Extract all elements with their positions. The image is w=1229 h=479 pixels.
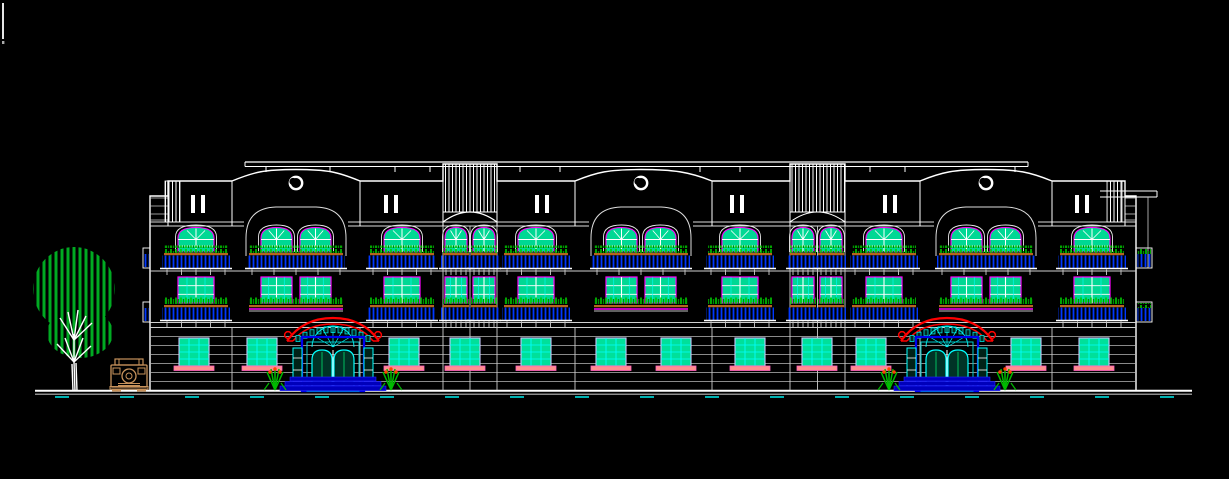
balcony-railing [469,308,499,321]
window-sill [656,366,696,371]
side-balcony [1136,248,1152,268]
window-sill [591,366,631,371]
ground-floor-window [656,338,696,371]
balcony-railing [706,256,774,269]
flower [389,367,392,370]
tower-striped-top [443,164,497,212]
window-sill [1006,366,1046,371]
balcony-plants [504,246,568,254]
second-floor-unit [160,277,232,327]
balcony-railing [592,256,690,269]
entrance-step [285,382,381,386]
balcony-railing [706,308,774,321]
planter-box [594,253,688,255]
balcony-railing [937,256,1035,269]
ground-floor-window [591,338,631,371]
planter-box [818,305,844,307]
car-headlight [138,368,145,374]
parapet-ii-ornaments [191,195,1089,213]
planter-box [249,305,343,307]
ii-mark [883,195,887,213]
window-sill [174,366,214,371]
flower [892,370,895,373]
building-elevation-drawing [0,0,1229,479]
balcony-railing [441,308,471,321]
ground-floor-window [445,338,485,371]
side-balcony [1136,302,1152,322]
planter-box [164,305,228,307]
tree-branch [72,364,73,391]
second-floor-unit [249,277,343,311]
ii-mark [384,195,388,213]
car-wheel [137,389,146,392]
canopy-ornament [366,336,370,342]
balcony-railing [788,308,818,321]
planter-box [708,253,772,255]
third-floor-unit [439,225,473,275]
entrance-step [894,386,1000,391]
planter-box [471,305,497,307]
flower [882,370,885,373]
ground-floor-window [1074,338,1114,371]
balcony-plants [708,298,772,306]
planter-box [504,253,568,255]
balcony-plants [1060,246,1124,254]
third-floor-unit [814,225,848,275]
balcony-railing [441,256,471,269]
tower-arch [790,212,845,222]
gable-circle-ornament [979,177,992,189]
planter-box [164,253,228,255]
ground-floor-window [174,338,214,371]
window-sill [730,366,770,371]
third-floor-unit [366,225,438,275]
balcony-railing [816,256,846,269]
ground-floor-window [242,338,282,371]
car-bumper [110,387,148,390]
balcony-plants [790,298,816,306]
balcony-plants [852,298,916,306]
gable-circle-ornament [289,177,302,189]
entrance-step [904,377,990,381]
third-floor-unit [245,207,347,275]
ground-floor-window [1006,338,1046,371]
balcony-railing [162,256,230,269]
ii-mark [1075,195,1079,213]
planter-plants [594,298,688,306]
ii-mark [394,195,398,213]
ground-floor-window [851,338,891,371]
ground-floor-window [797,338,837,371]
flower [278,370,281,373]
car-headlight [113,368,120,374]
third-floor-unit [786,225,820,275]
third-floor-unit [160,225,232,275]
balcony-plants [443,246,469,254]
balcony-plants [370,298,434,306]
second-floor-unit [704,277,776,327]
balcony-railing [502,308,570,321]
balcony-plants [939,246,1033,254]
canopy-ornament [296,336,300,342]
flower [1003,367,1006,370]
striped-pilaster [1107,181,1122,222]
planter-box [504,305,568,307]
entrance-step [290,377,376,381]
second-floor-unit [439,277,473,327]
balcony-railing [1058,256,1126,269]
second-floor-unit [366,277,438,327]
ground-floor-window [730,338,770,371]
tower-arch [443,212,497,222]
ii-mark [1085,195,1089,213]
flower [887,367,890,370]
balcony-plants [594,246,688,254]
balcony-plants [708,246,772,254]
planter-box [370,305,434,307]
planter-box [818,253,844,255]
ii-mark [893,195,897,213]
balcony-railing [1058,308,1126,321]
planter-box [370,253,434,255]
planter-box [939,253,1033,255]
planter-box [443,253,469,255]
balcony-plants [818,246,844,254]
cad-drawing-area [0,0,1229,479]
third-floor-unit [500,225,572,275]
balcony-railing [162,308,230,321]
window-sill [797,366,837,371]
balcony-railing [850,308,918,321]
balcony-railing [850,256,918,269]
planter-plants [939,298,1033,306]
balcony-plants [164,246,228,254]
flower [268,370,271,373]
tree-branch [74,362,75,391]
striped-pilaster [165,181,180,222]
third-floor-unit [590,207,692,275]
balcony-plants [370,246,434,254]
canopy-ornament [310,330,314,336]
tree [33,247,115,391]
second-floor-unit [500,277,572,327]
third-floor-unit [1056,225,1128,275]
entrance-step [899,382,995,386]
planter-box [852,305,916,307]
ground-floor-window [384,338,424,371]
second-floor-unit [467,277,501,327]
balcony-plants [1060,298,1124,306]
flower [384,370,387,373]
ii-mark [730,195,734,213]
planter-box [471,253,497,255]
balcony-plants [790,246,816,254]
flower [394,370,397,373]
balcony-railing [368,256,436,269]
balcony-railing [469,256,499,269]
second-floor-unit [1056,277,1128,327]
window-sill [516,366,556,371]
canopy-ornament [924,330,928,336]
balcony-railing [816,308,846,321]
tree-branch [76,363,77,391]
ii-mark [740,195,744,213]
car [110,359,148,392]
balcony-plants [818,298,844,306]
second-floor-unit [814,277,848,327]
planter-box [790,253,816,255]
ground-line [35,391,1192,394]
balcony-plants [504,298,568,306]
flower [273,367,276,370]
flower [998,370,1001,373]
planter-box [1060,253,1124,255]
second-floor-unit [848,277,920,327]
third-floor-unit [935,207,1037,275]
planter-box [1060,305,1124,307]
ii-mark [535,195,539,213]
balcony-railing [502,256,570,269]
balcony-railing [788,256,818,269]
canopy-ornament [910,336,914,342]
window-sill [1074,366,1114,371]
planter-box [852,253,916,255]
balcony-plants [852,246,916,254]
balcony-plants [471,298,497,306]
planter-box [443,305,469,307]
flower [1008,370,1011,373]
third-floor-unit [467,225,501,275]
ground-floor-window [516,338,556,371]
balcony-railing [368,308,436,321]
third-floor-unit [704,225,776,275]
tower-striped-top [790,164,845,212]
side-balcony [143,302,150,322]
planter-box [594,305,688,307]
text-cursor-mark [2,3,4,44]
canopy-ornament [966,330,970,336]
balcony-plants [249,246,343,254]
second-floor-unit [786,277,820,327]
window-sill [445,366,485,371]
planter-box [790,305,816,307]
planter-box [939,305,1033,307]
tree-canopy [47,308,113,358]
balcony-railing [247,256,345,269]
balcony-plants [164,298,228,306]
entrance-step [280,386,386,391]
ii-mark [201,195,205,213]
car-spare-tire [122,369,136,383]
third-floor-unit [848,225,920,275]
side-balcony [143,248,150,268]
ii-mark [545,195,549,213]
ii-mark [191,195,195,213]
planter-box [708,305,772,307]
gable-circle-ornament [634,177,647,189]
planter-box [249,253,343,255]
car-wheel [112,389,121,392]
second-floor-unit [594,277,688,311]
balcony-plants [471,246,497,254]
roof-parapet-band [245,162,1028,172]
balcony-plants [443,298,469,306]
second-floor-unit [939,277,1033,311]
canopy-ornament [980,336,984,342]
canopy-ornament [352,330,356,336]
planter-plants [249,298,343,306]
